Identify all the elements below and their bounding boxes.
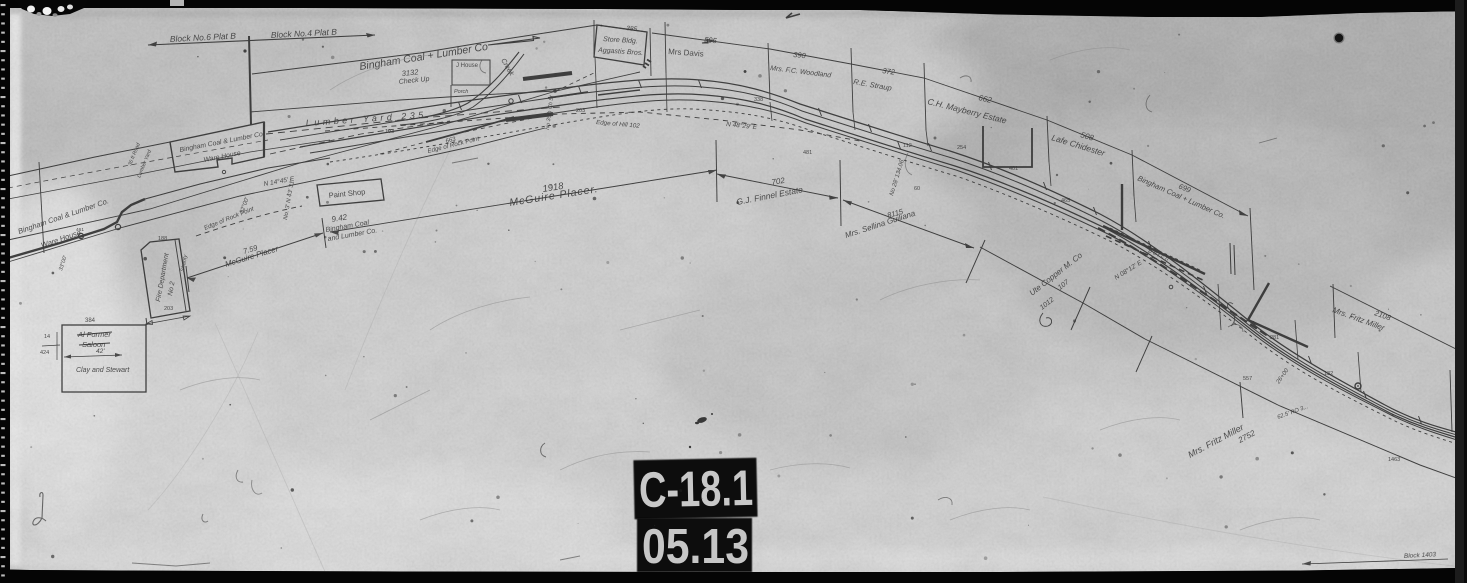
svg-text:203: 203 xyxy=(576,108,585,114)
svg-text:188: 188 xyxy=(158,236,167,242)
svg-text:461: 461 xyxy=(76,227,84,233)
svg-text:390: 390 xyxy=(793,50,807,60)
svg-text:338: 338 xyxy=(754,97,763,103)
svg-text:132: 132 xyxy=(1324,371,1333,377)
svg-text:103: 103 xyxy=(385,129,394,135)
svg-text:481: 481 xyxy=(803,150,812,156)
svg-text:465: 465 xyxy=(1061,198,1070,204)
svg-text:J House: J House xyxy=(456,63,479,69)
svg-text:05.13: 05.13 xyxy=(642,520,749,574)
svg-text:C-18.1: C-18.1 xyxy=(638,460,753,518)
svg-text:595: 595 xyxy=(704,35,718,45)
svg-text:60: 60 xyxy=(914,186,920,192)
svg-text:557: 557 xyxy=(1243,376,1252,382)
svg-text:281: 281 xyxy=(1270,335,1279,341)
svg-text:372: 372 xyxy=(882,66,896,77)
svg-text:1463: 1463 xyxy=(1388,457,1400,463)
svg-text:42': 42' xyxy=(96,348,105,355)
svg-text:Clay and Stewart: Clay and Stewart xyxy=(76,367,130,374)
svg-text:401: 401 xyxy=(1009,166,1018,172)
svg-text:254: 254 xyxy=(957,145,966,151)
svg-text:384: 384 xyxy=(85,318,96,324)
svg-text:385: 385 xyxy=(626,25,638,33)
svg-text:112: 112 xyxy=(903,143,912,149)
svg-text:424: 424 xyxy=(40,350,49,356)
svg-text:Al Former: Al Former xyxy=(77,330,111,339)
svg-text:14: 14 xyxy=(44,334,50,340)
svg-text:Porch: Porch xyxy=(454,89,468,95)
svg-text:203: 203 xyxy=(164,306,173,312)
